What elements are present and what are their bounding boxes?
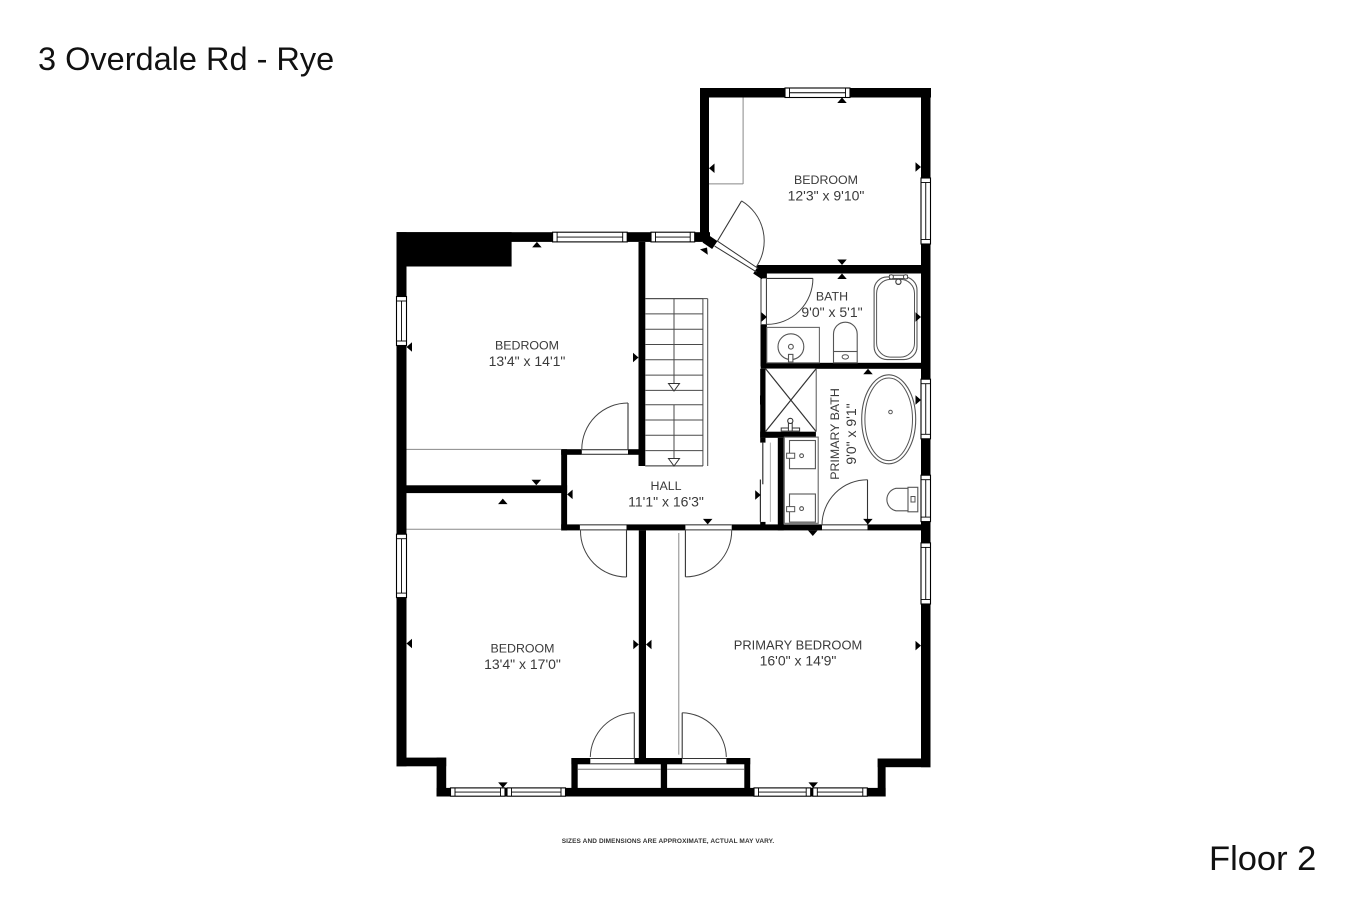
svg-text:BATH: BATH — [816, 290, 848, 304]
svg-text:12'3" x 9'10": 12'3" x 9'10" — [788, 187, 865, 203]
svg-text:BEDROOM: BEDROOM — [495, 339, 559, 353]
svg-text:PRIMARY BEDROOM: PRIMARY BEDROOM — [734, 637, 862, 652]
svg-text:11'1" x 16'3": 11'1" x 16'3" — [628, 494, 704, 510]
svg-text:Floor 2: Floor 2 — [1209, 840, 1316, 878]
svg-text:PRIMARY BATH: PRIMARY BATH — [828, 388, 842, 480]
svg-text:HALL: HALL — [651, 479, 682, 493]
svg-text:BEDROOM: BEDROOM — [490, 642, 554, 656]
svg-text:16'0" x 14'9": 16'0" x 14'9" — [760, 653, 837, 669]
svg-text:3 Overdale Rd - Rye: 3 Overdale Rd - Rye — [38, 41, 334, 77]
svg-text:SIZES AND DIMENSIONS ARE APPRO: SIZES AND DIMENSIONS ARE APPROXIMATE, AC… — [562, 838, 775, 845]
svg-text:9'0" x 9'1": 9'0" x 9'1" — [843, 403, 859, 464]
svg-text:BEDROOM: BEDROOM — [794, 173, 858, 187]
svg-text:13'4" x 17'0": 13'4" x 17'0" — [484, 656, 561, 672]
svg-text:9'0" x 5'1": 9'0" x 5'1" — [801, 304, 862, 320]
svg-text:13'4" x 14'1": 13'4" x 14'1" — [489, 353, 566, 369]
